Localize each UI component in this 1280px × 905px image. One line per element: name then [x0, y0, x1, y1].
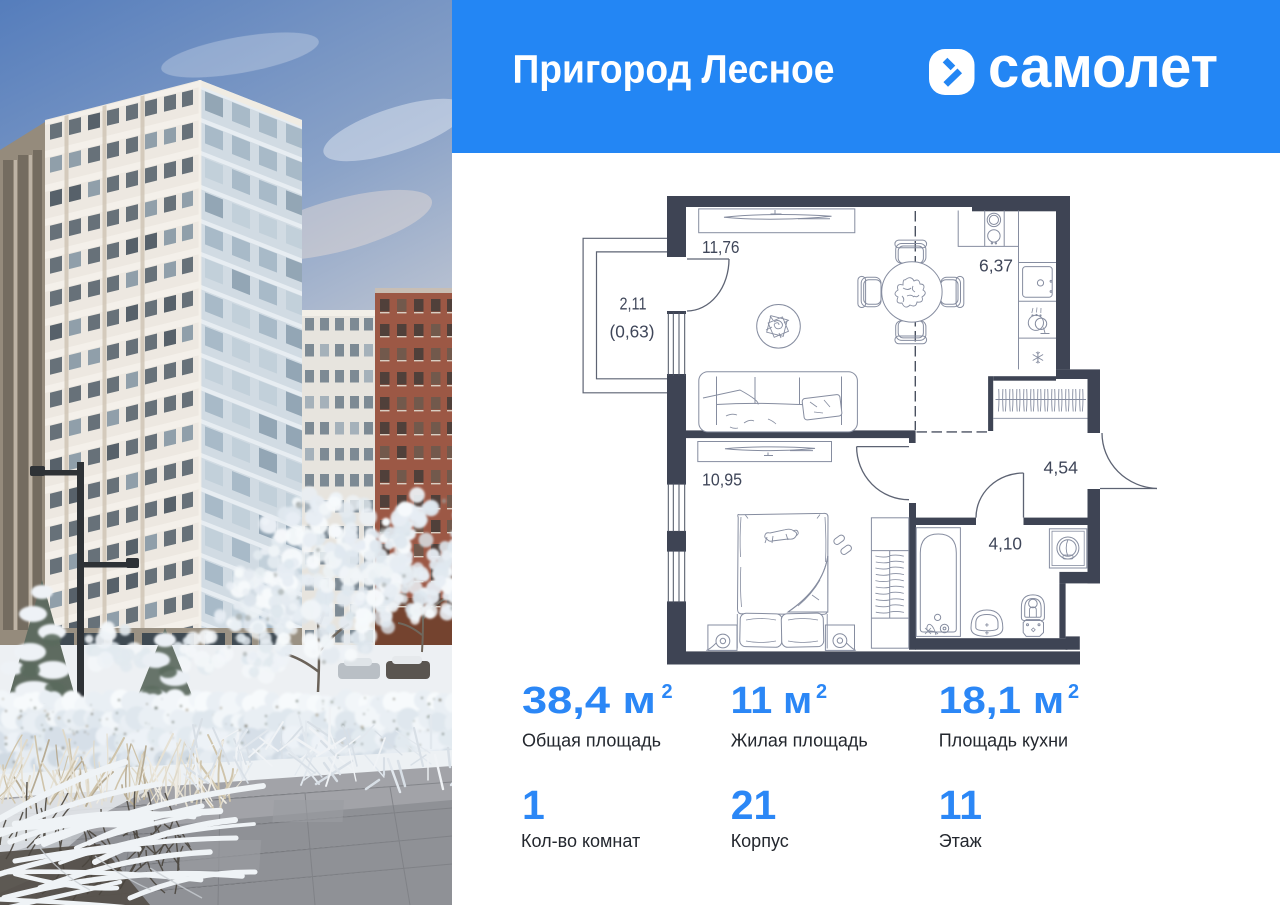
- svg-text:38,4 м: 38,4 м: [522, 680, 656, 722]
- svg-text:6,37: 6,37: [979, 256, 1013, 276]
- svg-text:самолет: самолет: [988, 35, 1218, 100]
- svg-text:11 м: 11 м: [731, 680, 813, 722]
- svg-text:2: 2: [816, 681, 827, 703]
- svg-text:(0,63): (0,63): [610, 322, 655, 342]
- svg-text:2,11: 2,11: [620, 294, 647, 314]
- svg-text:Жилая площадь: Жилая площадь: [731, 730, 868, 750]
- svg-text:Корпус: Корпус: [731, 831, 789, 851]
- svg-text:2: 2: [1068, 681, 1079, 703]
- svg-text:21: 21: [731, 782, 777, 828]
- svg-text:4,54: 4,54: [1044, 458, 1079, 478]
- svg-text:11,76: 11,76: [702, 237, 740, 257]
- svg-text:Площадь кухни: Площадь кухни: [939, 730, 1068, 750]
- svg-text:Кол-во комнат: Кол-во комнат: [521, 831, 640, 851]
- svg-text:18,1 м: 18,1 м: [939, 680, 1064, 722]
- svg-text:4,10: 4,10: [989, 534, 1023, 554]
- svg-text:11: 11: [939, 782, 982, 828]
- svg-text:1: 1: [522, 782, 545, 828]
- svg-text:Этаж: Этаж: [939, 831, 982, 851]
- svg-text:2: 2: [662, 681, 673, 703]
- svg-text:10,95: 10,95: [702, 470, 742, 490]
- svg-text:Пригород Лесное: Пригород Лесное: [513, 47, 835, 91]
- svg-text:Общая площадь: Общая площадь: [522, 730, 661, 750]
